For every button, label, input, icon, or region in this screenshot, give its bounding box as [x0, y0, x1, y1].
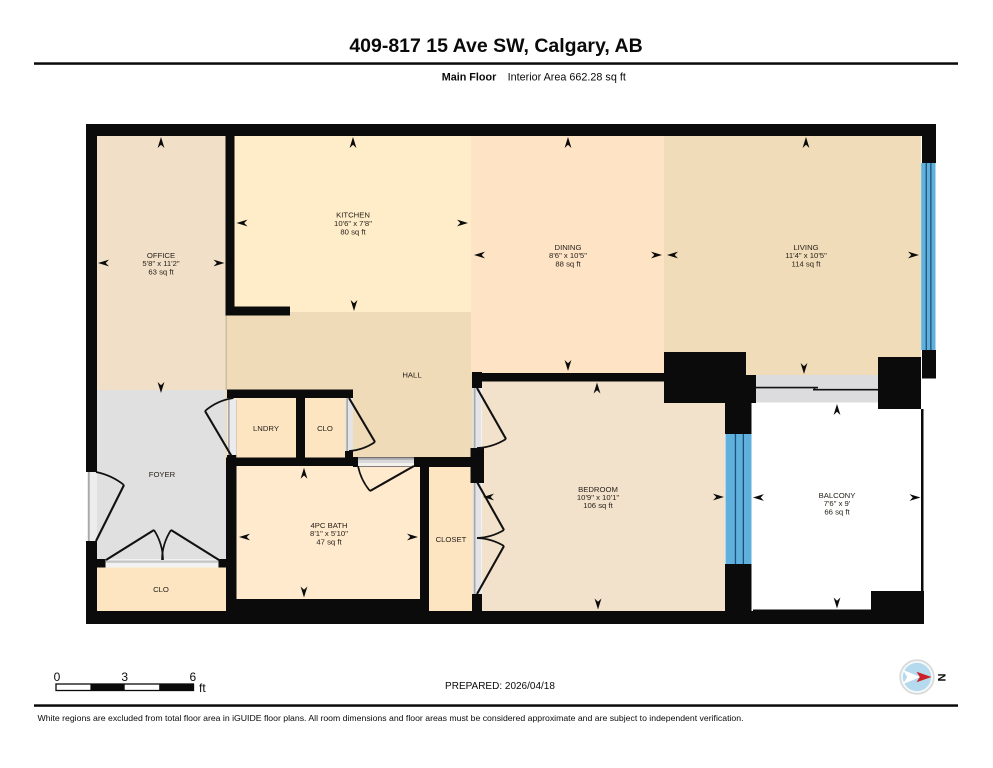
svg-text:88 sq ft: 88 sq ft — [555, 259, 581, 268]
svg-text:106 sq ft: 106 sq ft — [583, 501, 613, 510]
svg-text:6: 6 — [189, 670, 196, 684]
svg-text:114 sq ft: 114 sq ft — [792, 259, 822, 268]
svg-text:CLOSET: CLOSET — [436, 535, 467, 544]
svg-text:ft: ft — [199, 681, 206, 695]
svg-text:CLO: CLO — [317, 424, 333, 433]
svg-text:Main Floor: Main Floor — [442, 72, 497, 84]
svg-text:Interior Area 662.28 sq ft: Interior Area 662.28 sq ft — [508, 72, 626, 84]
svg-text:63 sq ft: 63 sq ft — [148, 268, 174, 277]
svg-text:66 sq ft: 66 sq ft — [824, 507, 850, 516]
svg-text:N: N — [935, 674, 947, 682]
svg-text:80 sq ft: 80 sq ft — [340, 227, 366, 236]
svg-text:409-817 15 Ave SW, Calgary, AB: 409-817 15 Ave SW, Calgary, AB — [349, 35, 642, 57]
svg-text:White regions are excluded fro: White regions are excluded from total fl… — [38, 713, 744, 723]
svg-text:PREPARED: 2026/04/18: PREPARED: 2026/04/18 — [445, 681, 555, 692]
svg-text:HALL: HALL — [402, 371, 422, 380]
svg-text:3: 3 — [121, 670, 128, 684]
svg-text:LNDRY: LNDRY — [253, 424, 279, 433]
svg-text:FOYER: FOYER — [149, 470, 176, 479]
svg-text:0: 0 — [54, 670, 61, 684]
svg-text:47 sq ft: 47 sq ft — [316, 537, 342, 546]
svg-text:CLO: CLO — [153, 585, 169, 594]
